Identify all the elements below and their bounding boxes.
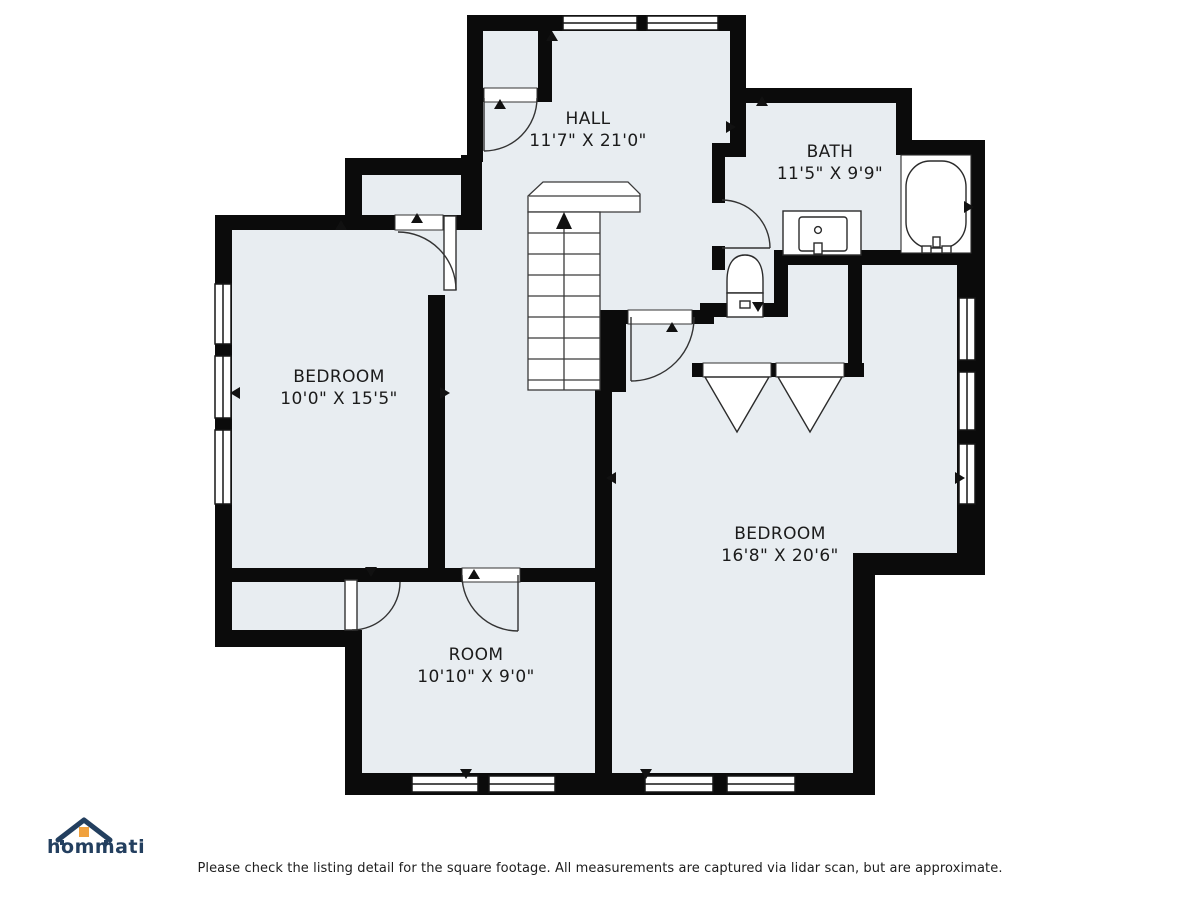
stair-landing bbox=[528, 182, 640, 212]
room-name: BEDROOM bbox=[734, 524, 826, 544]
room-label-bath: BATH 11'5" X 9'9" bbox=[777, 141, 883, 185]
room-name: BEDROOM bbox=[293, 367, 385, 387]
disclaimer-text: Please check the listing detail for the … bbox=[0, 861, 1200, 876]
room-dimensions: 10'0" X 15'5" bbox=[280, 388, 398, 410]
sink-drain bbox=[815, 227, 822, 234]
sink-faucet bbox=[814, 243, 822, 254]
floorplan-page: HALL 11'7" X 21'0" BATH 11'5" X 9'9" BED… bbox=[0, 0, 1200, 900]
room-dimensions: 10'10" X 9'0" bbox=[417, 666, 535, 688]
room-dimensions: 11'7" X 21'0" bbox=[529, 130, 647, 152]
room-name: ROOM bbox=[449, 645, 504, 665]
room-name: BATH bbox=[807, 142, 854, 162]
room-name: HALL bbox=[566, 109, 611, 129]
room-dimensions: 11'5" X 9'9" bbox=[777, 163, 883, 185]
bathtub bbox=[901, 155, 971, 253]
room-label-bedroom-left: BEDROOM 10'0" X 15'5" bbox=[280, 366, 398, 410]
tub-faucet bbox=[933, 237, 940, 247]
room-label-hall: HALL 11'7" X 21'0" bbox=[529, 108, 647, 152]
room-label-room: ROOM 10'10" X 9'0" bbox=[417, 644, 535, 688]
logo-text: hommati bbox=[47, 836, 144, 858]
vanity-sink bbox=[783, 211, 861, 255]
room-dimensions: 16'8" X 20'6" bbox=[721, 545, 839, 567]
hommati-logo: hommati bbox=[44, 814, 144, 864]
toilet-button bbox=[740, 301, 750, 308]
room-label-bedroom-main: BEDROOM 16'8" X 20'6" bbox=[721, 523, 839, 567]
